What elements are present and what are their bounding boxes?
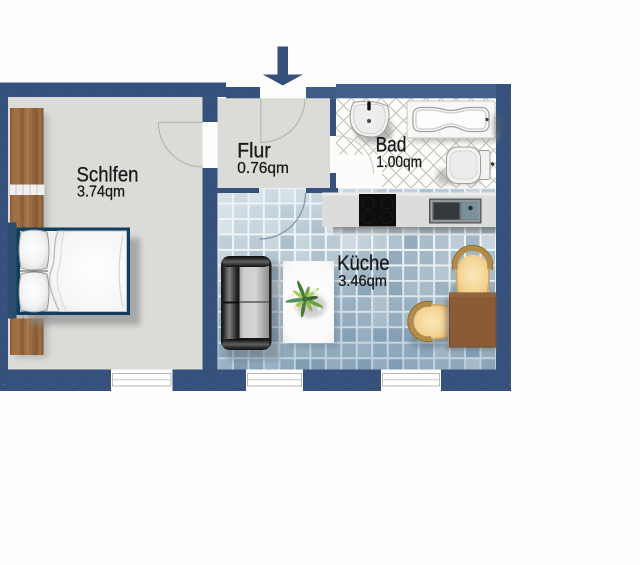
svg-text:0.76qm: 0.76qm <box>237 160 289 177</box>
svg-text:Flur: Flur <box>237 138 270 162</box>
svg-text:3.46qm: 3.46qm <box>338 273 387 290</box>
svg-text:Küche: Küche <box>337 251 390 275</box>
svg-text:3.74qm: 3.74qm <box>77 183 125 200</box>
svg-text:1.00qm: 1.00qm <box>376 154 422 171</box>
svg-text:Bad: Bad <box>376 133 407 157</box>
